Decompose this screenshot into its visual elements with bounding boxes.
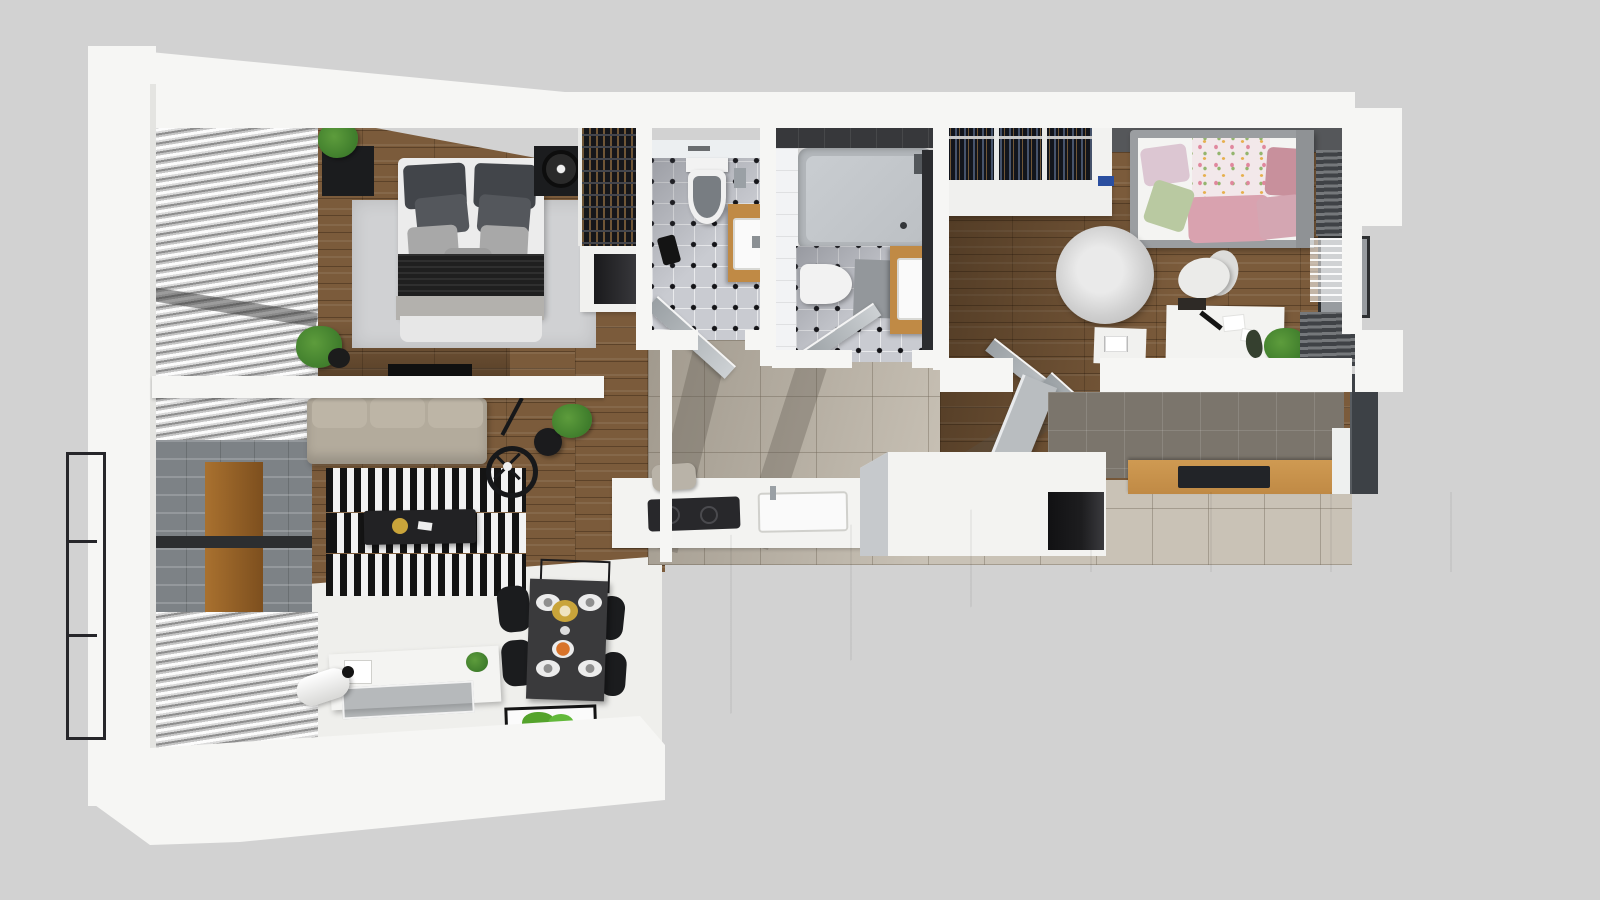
wc-left-wall [636,112,652,350]
window-mullion [152,536,312,548]
balcony-railing [66,452,106,740]
closet-divider-1 [994,124,999,182]
bath-bottom-wall-left [772,350,852,368]
sofa-back-cushion-1 [312,398,367,428]
toaster [651,462,697,491]
food-plate [552,640,574,658]
floor-lamp-cap [342,666,354,678]
desk-book-stack [1178,298,1206,310]
closet-shelf-band [944,180,1112,216]
bedside-lamp-icon [542,150,580,188]
between-baths-wall [760,108,776,366]
passage-threshold [660,350,672,562]
kids-pillow-lilac [1140,143,1191,187]
left-window-blinds-lower [150,612,318,756]
bed-foot [400,316,542,342]
right-wall-top [1342,108,1402,226]
railing-rung-1 [69,540,97,543]
closet-blue-box [1098,176,1114,186]
coffee-table-bowl [392,518,408,534]
plate-2 [578,594,602,611]
railing-rung-2 [69,634,97,637]
closet-divider-2 [1042,124,1047,182]
wc-toilet-lid [693,176,721,218]
sofa-back-cushion-3 [428,398,483,428]
wc-vent [688,146,710,151]
kitchen-faucet [770,486,776,500]
sideboard-plant [466,652,488,672]
closet-hanging-clothes [946,124,1092,182]
wc-faucet [752,236,760,248]
dining-chair-1 [496,584,533,633]
wc-bottom-jamb [745,330,763,350]
plate-3 [536,660,560,677]
top-wall-main [560,92,1355,128]
wc-bottom-wall [636,330,698,350]
kitchen-cooktop-right [1178,466,1270,488]
bathtub-inner [806,156,925,242]
wc-paper-holder [734,168,746,188]
bedroom-plant-pot [328,348,350,368]
bedroom-living-divider-wall [152,376,604,398]
plate-4 [578,660,602,677]
kitchen-pillar [1332,428,1352,494]
bed-black-throw [398,254,544,300]
bathtub-drain [900,222,907,229]
bath-bottom-wall-right [912,350,937,368]
bath-right-wall [933,108,949,370]
bedroom-tv [388,364,472,376]
living-rug-band-3 [326,554,526,596]
wheel-clock-hub [503,462,512,471]
shoe-cabinet-niche [594,254,640,304]
gold-charger-plate [552,600,578,622]
right-wall-mid [1342,226,1362,334]
closet-rail [946,136,1092,139]
kids-bottom-wall-right [1100,358,1352,392]
bath-dark-right-strip [922,150,933,362]
fridge [1350,374,1378,494]
kids-headboard [1296,130,1314,248]
island-niche [1048,492,1104,550]
desk-paper-1 [1223,315,1244,331]
small-bowl [560,626,570,635]
open-book [1104,336,1128,352]
kids-bottom-wall-left [940,358,1013,392]
top-wall-diagonal [88,46,565,128]
left-wall-inner-edge [150,84,156,756]
cooktop-burner-2 [700,506,718,524]
kids-round-rug [1056,226,1154,324]
sofa-back-cushion-2 [370,398,425,428]
bath-toilet [800,264,852,304]
floorplan-render [0,0,1600,900]
outside-wood-door [205,462,263,634]
right-wall-bottom [1355,330,1403,392]
